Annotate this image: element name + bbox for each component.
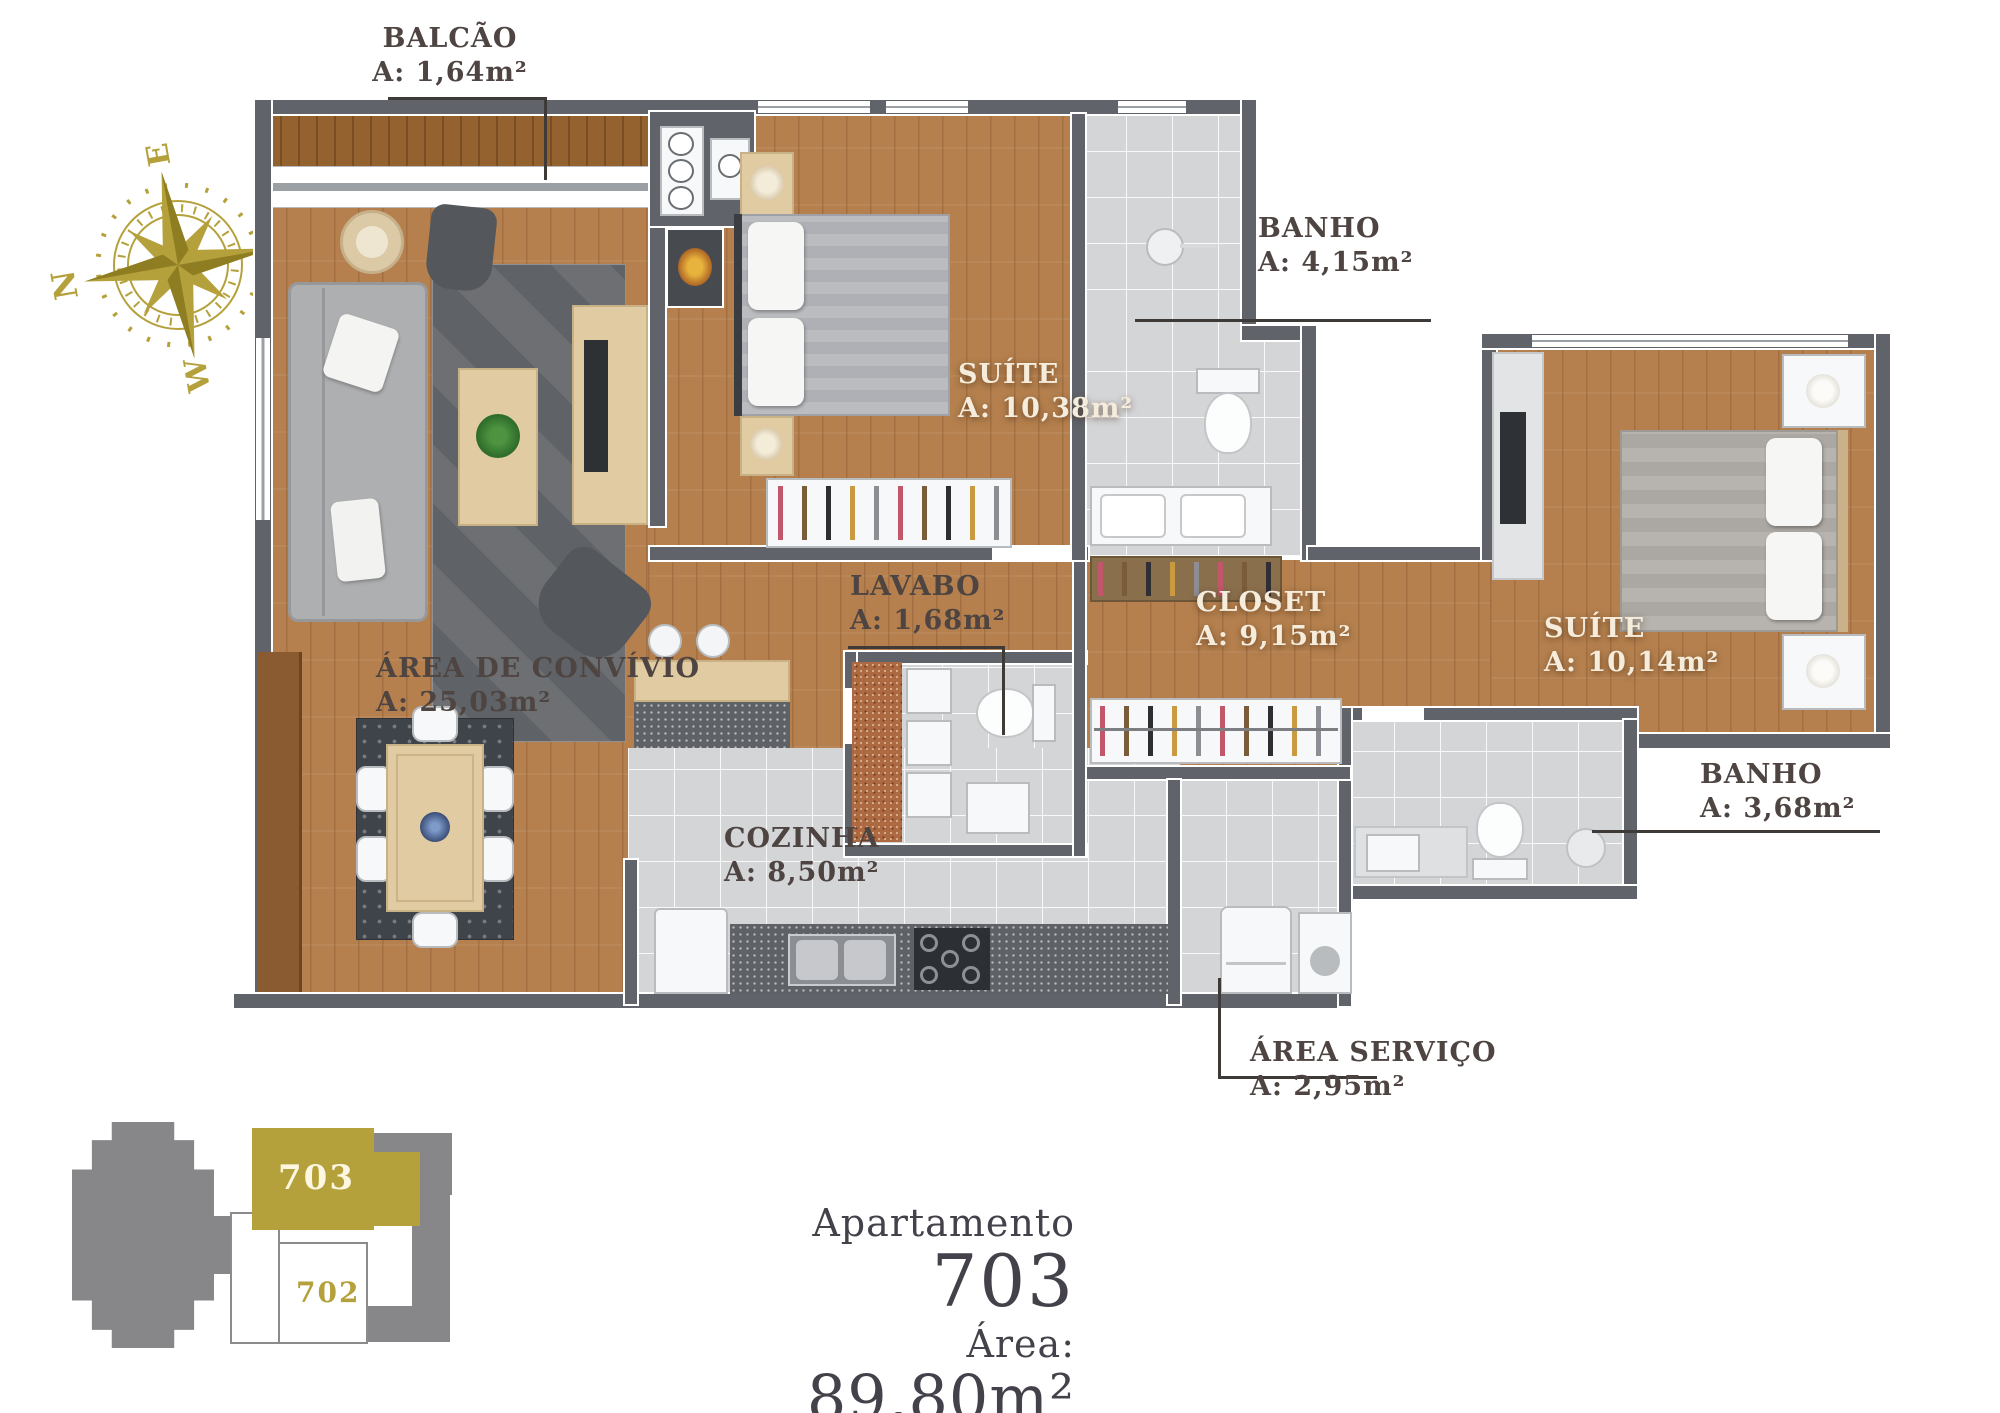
wall-banho2-bottom — [1337, 884, 1639, 901]
toilet-banho2-bowl — [1476, 802, 1524, 858]
wall-suite2-bottom — [1624, 732, 1892, 750]
wall-bottom — [232, 992, 1354, 1010]
stool-2 — [696, 624, 730, 658]
plant — [476, 414, 520, 458]
label-servico: ÁREA SERVIÇO A: 2,95m² — [1250, 1036, 1496, 1104]
wall-banho2-right — [1622, 718, 1639, 900]
bed-suite2-headboard — [1838, 430, 1848, 632]
window-suite1-b — [886, 101, 968, 113]
toilet-banho1-tank — [1196, 368, 1260, 394]
label-suite2-area: A: 10,14m² — [1544, 646, 1719, 680]
label-convivio: ÁREA DE CONVÍVIO A: 25,03m² — [376, 652, 700, 720]
shower-arm-banho1 — [1180, 244, 1216, 248]
lamp-s1-top — [750, 166, 784, 200]
label-closet: CLOSET A: 9,15m² — [1196, 586, 1351, 654]
label-cozinha: COZINHA A: 8,50m² — [724, 822, 880, 890]
label-suite2-name: SUÍTE — [1544, 612, 1719, 646]
floor-plan-page: N E S W — [0, 0, 2000, 1413]
label-closet-area: A: 9,15m² — [1196, 620, 1351, 654]
leader-balcao — [388, 97, 547, 180]
exterior-notch-2 — [1316, 332, 1490, 545]
bed-suite2-pillow-1 — [1766, 438, 1822, 526]
compass-west: W — [178, 354, 219, 396]
shower-head-banho1 — [1146, 228, 1184, 266]
label-balcao-name: BALCÃO — [330, 22, 570, 56]
oven-dial-2 — [668, 159, 694, 183]
label-closet-name: CLOSET — [1196, 586, 1351, 620]
keyplan-unit-left-white — [230, 1212, 280, 1344]
side-table-inner — [356, 226, 388, 258]
lamp-s2-bottom — [1806, 654, 1840, 688]
wall-banho1-right-upper — [1240, 98, 1258, 340]
bed-suite2-pillow-2 — [1766, 532, 1822, 620]
entry-door-panel — [258, 652, 302, 992]
basin-banho2 — [1366, 834, 1420, 872]
label-convivio-area: A: 25,03m² — [376, 686, 700, 720]
lavabo-sink — [966, 782, 1030, 834]
closet-rack-bar — [1094, 728, 1338, 731]
leader-banho1 — [1135, 319, 1431, 322]
wall-service-kitchen — [1166, 778, 1182, 1006]
burner-5 — [962, 966, 980, 984]
keyplan-label-702: 702 — [296, 1276, 360, 1309]
label-banho2-area: A: 3,68m² — [1700, 792, 1855, 826]
basin-banho1-b — [1180, 494, 1246, 538]
leader-lavabo — [848, 646, 1005, 735]
window-banho1 — [1118, 101, 1186, 113]
bed-suite1-pillow-1 — [748, 222, 804, 310]
title-area-label: Área: — [966, 1322, 1075, 1366]
leader-banho2 — [1592, 830, 1880, 833]
label-servico-name: ÁREA SERVIÇO — [1250, 1036, 1496, 1070]
burner-3 — [941, 950, 959, 968]
wall-kitchen-stub — [623, 858, 639, 1006]
compass-east: E — [140, 140, 178, 169]
basin-banho1-a — [1100, 494, 1166, 538]
lamp-s2-top — [1806, 374, 1840, 408]
apartment-number: 703 — [932, 1239, 1075, 1323]
label-banho2: BANHO A: 3,68m² — [1700, 758, 1855, 826]
chair-bottom — [412, 912, 458, 948]
keyplan-unit-703-arm — [370, 1152, 420, 1226]
wardrobe-suite1-clothes — [778, 486, 1000, 540]
keyplan-label-703: 703 — [278, 1158, 355, 1198]
wall-media — [648, 226, 667, 528]
fridge — [654, 908, 728, 994]
label-banho1: BANHO A: 4,15m² — [1258, 212, 1413, 280]
keyplan-building-body — [72, 1122, 214, 1348]
bed-suite1-pillow-2 — [748, 318, 804, 406]
label-suite1-name: SUÍTE — [958, 358, 1133, 392]
label-suite2: SUÍTE A: 10,14m² — [1544, 612, 1719, 680]
label-banho1-area: A: 4,15m² — [1258, 246, 1413, 280]
shower-head-banho2 — [1566, 828, 1606, 868]
window-suite2 — [1532, 335, 1848, 347]
label-banho2-name: BANHO — [1700, 758, 1855, 792]
toilet-banho1-bowl — [1204, 392, 1252, 454]
microwave-dial — [718, 154, 742, 178]
label-balcao-area: A: 1,64m² — [330, 56, 570, 90]
keyplan-right-bottom — [362, 1306, 450, 1342]
washer-1-line — [1226, 962, 1286, 965]
washer-2-door — [1310, 946, 1340, 976]
tv-suite2 — [1500, 412, 1526, 524]
tv-living — [584, 340, 608, 472]
wall-banho1-left — [1070, 112, 1087, 562]
toilet-banho2-tank — [1472, 858, 1528, 880]
bed-suite1-headboard — [734, 214, 742, 416]
wall-closet-service — [1080, 765, 1352, 781]
closet-rack-bottom-clothes — [1100, 706, 1332, 756]
burner-4 — [920, 966, 938, 984]
burner-1 — [920, 934, 938, 952]
label-cozinha-name: COZINHA — [724, 822, 880, 856]
title-block: Apartamento 703 Área: 89,80m² — [700, 1204, 1075, 1413]
window-living-left — [256, 338, 270, 520]
label-suite1: SUÍTE A: 10,38m² — [958, 358, 1133, 426]
door-gap-banho2 — [1362, 708, 1424, 720]
window-suite1-a — [758, 101, 870, 113]
label-balcao: BALCÃO A: 1,64m² — [330, 22, 570, 90]
label-banho1-name: BANHO — [1258, 212, 1413, 246]
door-gap-suite1 — [992, 547, 1072, 560]
lavabo-shelf-3 — [906, 772, 952, 818]
label-lavabo-name: LAVABO — [850, 570, 1005, 604]
centerpiece — [420, 812, 450, 842]
toilet-lavabo-tank — [1032, 684, 1056, 742]
wall-lavabo-closet — [1072, 560, 1087, 858]
label-lavabo: LAVABO A: 1,68m² — [850, 570, 1005, 638]
flower-decor — [678, 248, 712, 286]
sofa-seatline — [322, 288, 325, 616]
label-cozinha-area: A: 8,50m² — [724, 856, 880, 890]
room-banho1-floor — [1080, 112, 1248, 336]
kitchen-sink-bowl-1 — [796, 940, 838, 980]
label-servico-area: A: 2,95m² — [1250, 1070, 1496, 1104]
wall-suite2-right — [1874, 332, 1892, 748]
apartment-area: 89,80m² — [807, 1361, 1075, 1413]
label-convivio-name: ÁREA DE CONVÍVIO — [376, 652, 700, 686]
compass-north: N — [48, 267, 86, 302]
label-lavabo-area: A: 1,68m² — [850, 604, 1005, 638]
sofa-pillow-2 — [330, 498, 386, 583]
burner-2 — [962, 934, 980, 952]
armchair-top — [424, 203, 498, 293]
oven-dial-3 — [668, 186, 694, 210]
oven-dial-1 — [668, 132, 694, 156]
label-suite1-area: A: 10,38m² — [958, 392, 1133, 426]
lamp-s1-bottom — [750, 428, 782, 460]
kitchen-sink-bowl-2 — [844, 940, 886, 980]
wall-hall2-top — [1306, 545, 1498, 562]
wall-banho1-right-lower — [1300, 324, 1318, 562]
